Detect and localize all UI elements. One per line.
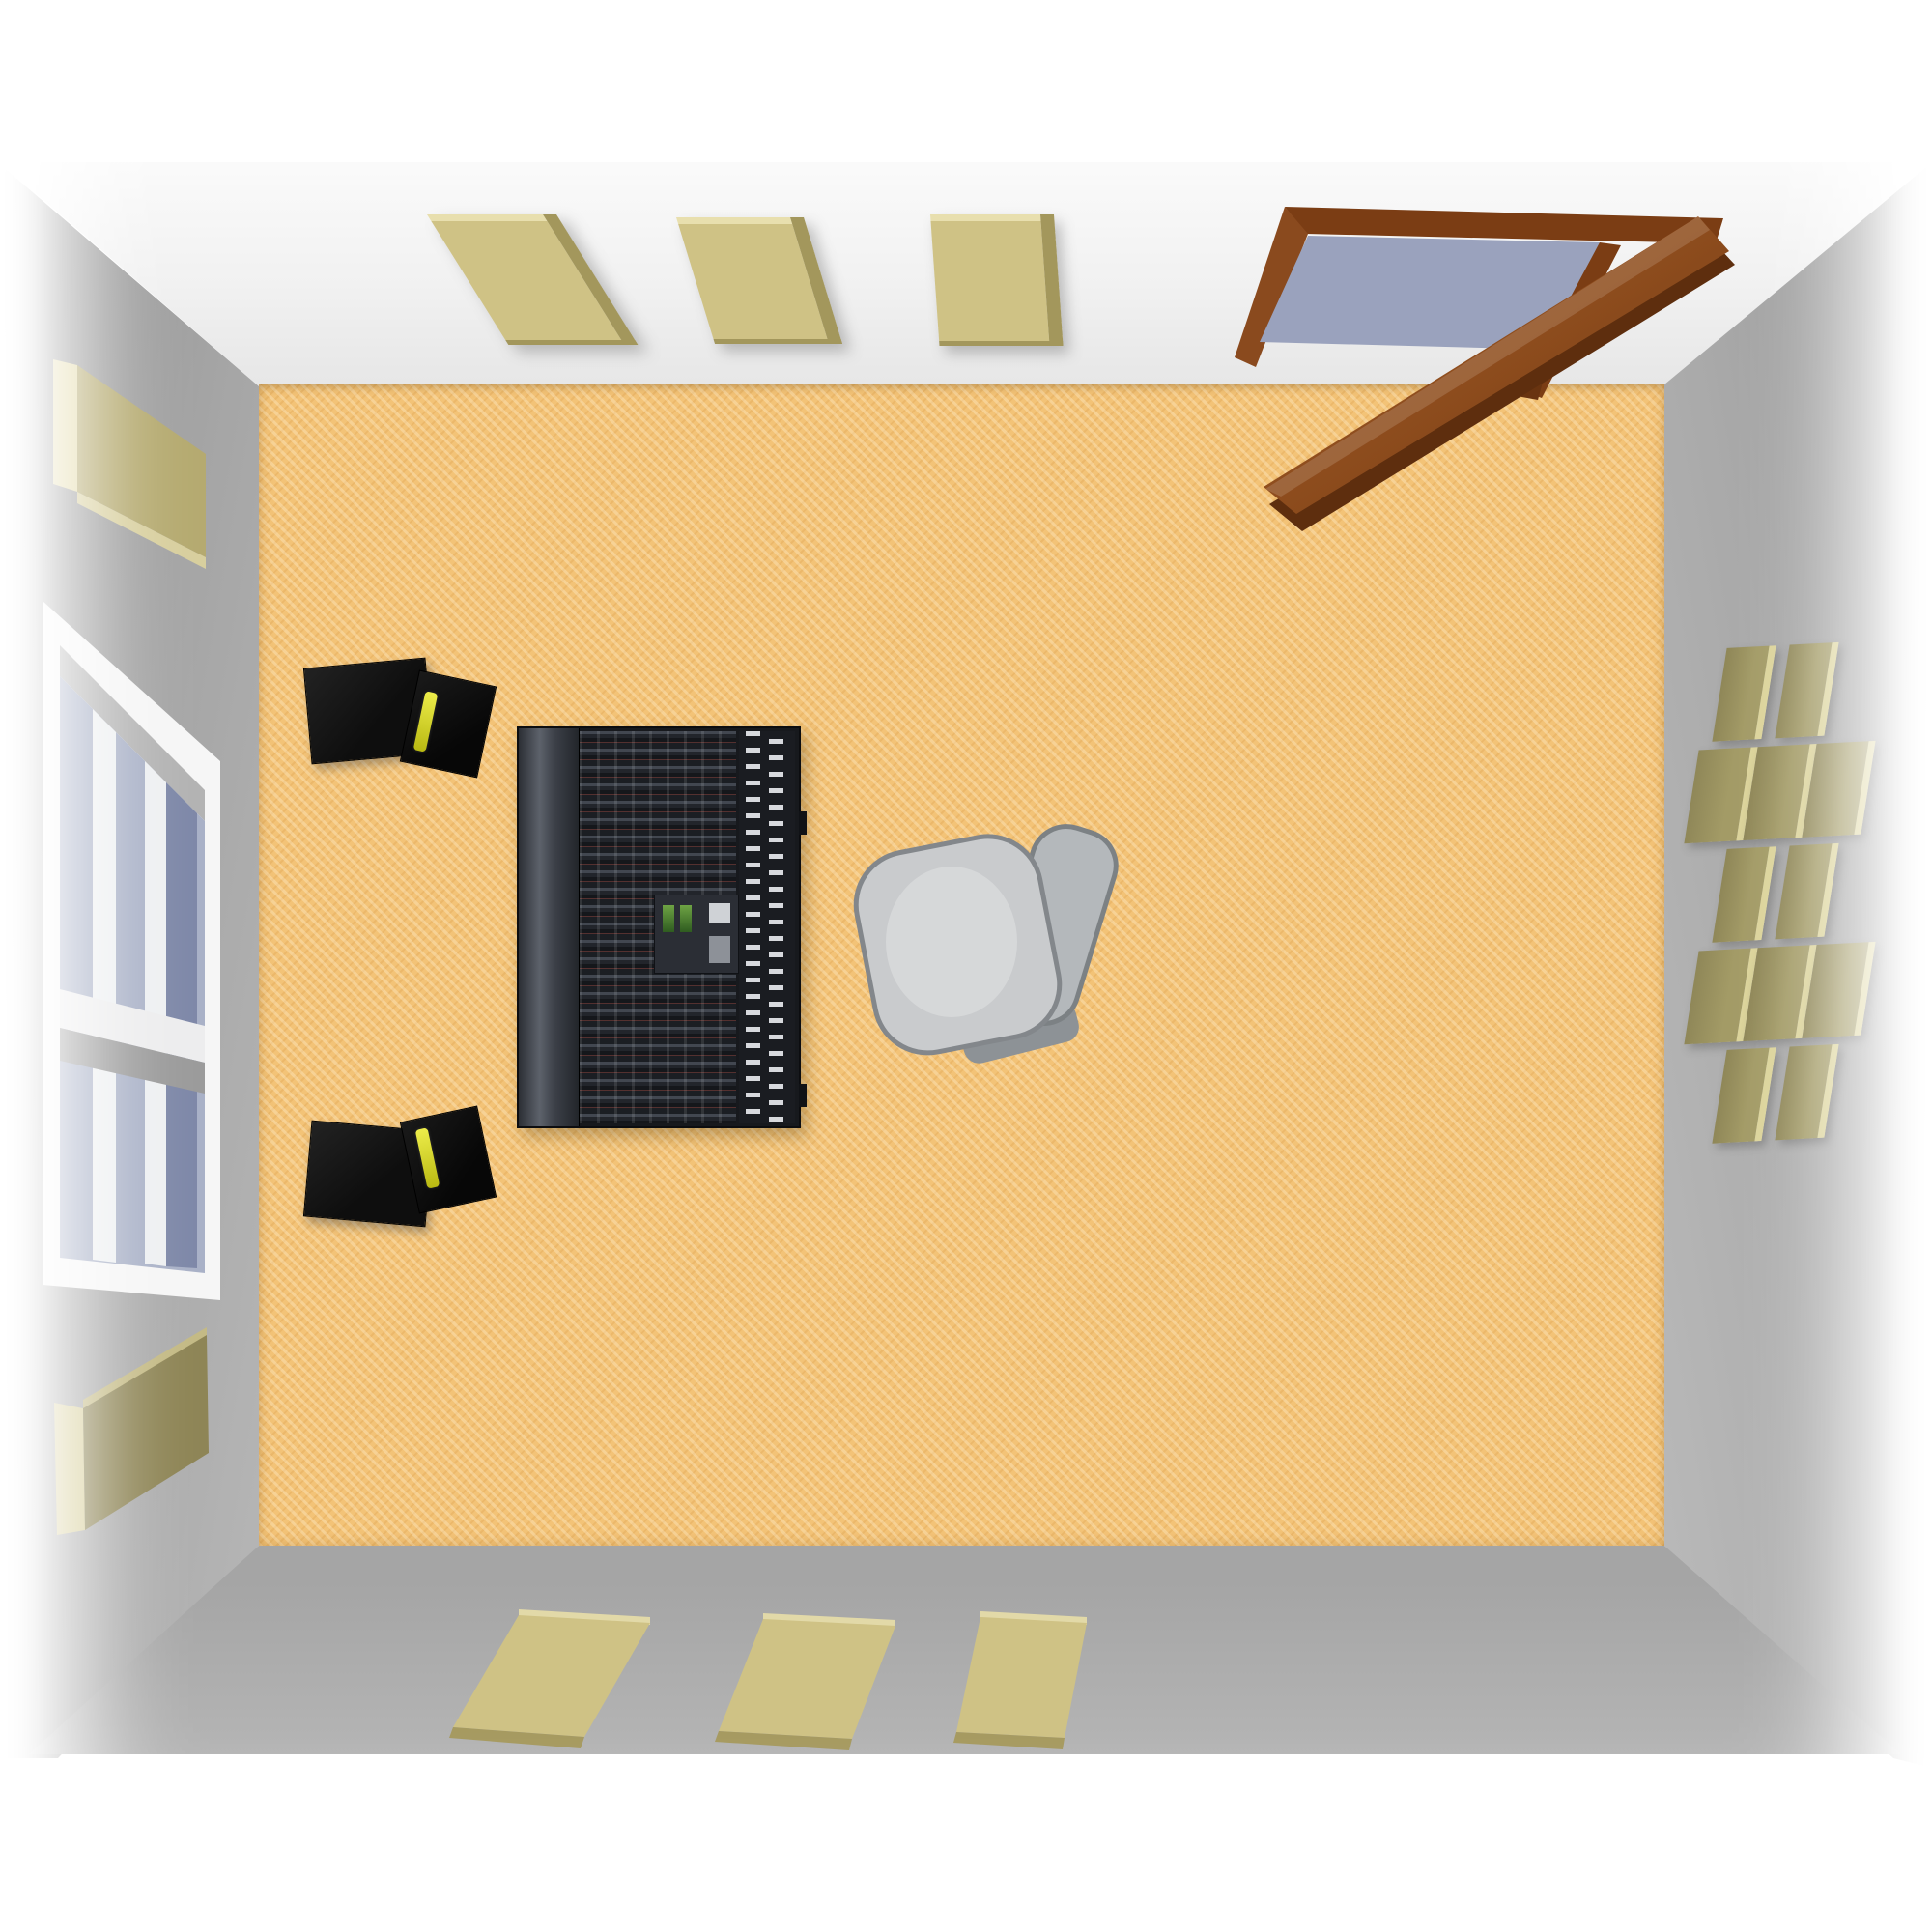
window[interactable] <box>43 601 220 1300</box>
acoustic-panel-left-upper[interactable] <box>53 359 206 569</box>
door-assembly <box>1198 135 1748 560</box>
diffuser-panel[interactable] <box>1712 645 1776 741</box>
diffuser-array <box>1687 629 1875 1160</box>
studio-monitor-lower[interactable] <box>307 1101 496 1232</box>
studio-monitor-upper[interactable] <box>307 653 496 783</box>
mixing-console[interactable] <box>517 726 801 1128</box>
diffuser-panel[interactable] <box>1712 846 1776 942</box>
acoustic-panel-bottom-1[interactable] <box>449 1609 650 1748</box>
room-render <box>0 0 1932 1932</box>
diffuser-panel[interactable] <box>1775 843 1838 939</box>
acoustic-panel-bottom-2[interactable] <box>715 1613 895 1750</box>
console-screen <box>680 905 692 932</box>
office-chair[interactable] <box>840 802 1169 1092</box>
window-mullion-1 <box>93 709 116 1263</box>
acoustic-panel-top-3[interactable] <box>930 214 1064 346</box>
console-pad <box>709 903 730 923</box>
left-wall-fixtures <box>29 348 232 1575</box>
acoustic-panel-bottom-3[interactable] <box>953 1611 1087 1749</box>
diffuser-panel[interactable] <box>1775 1044 1838 1140</box>
diffuser-panel[interactable] <box>1712 1047 1776 1143</box>
console-connector <box>799 1084 807 1107</box>
chair-seat-cushion <box>886 867 1017 1017</box>
bottom-wall-panels <box>435 1594 1111 1758</box>
console-armrest <box>519 728 580 1126</box>
acoustic-panel-left-lower[interactable] <box>54 1327 209 1535</box>
console-fader-bank[interactable] <box>739 731 795 1123</box>
console-screen <box>663 905 674 932</box>
console-pad <box>709 936 730 963</box>
diffuser-panel[interactable] <box>1775 642 1838 738</box>
console-connector <box>799 811 807 835</box>
console-master-section[interactable] <box>654 895 739 974</box>
